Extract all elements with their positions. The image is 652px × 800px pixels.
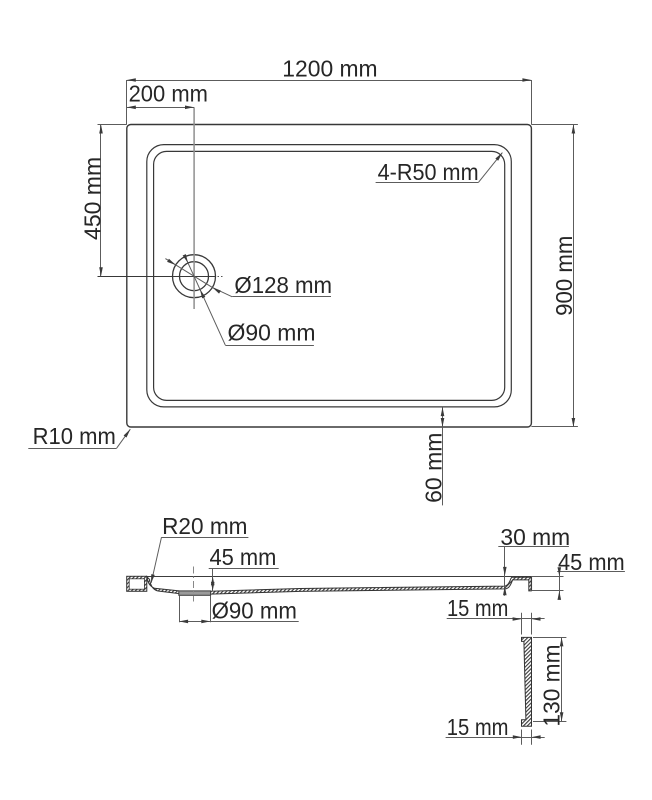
svg-text:130 mm: 130 mm	[539, 644, 565, 726]
svg-text:900 mm: 900 mm	[551, 236, 577, 316]
svg-text:Ø90 mm: Ø90 mm	[212, 598, 297, 624]
svg-text:45 mm: 45 mm	[558, 549, 625, 575]
svg-text:30 mm: 30 mm	[500, 524, 570, 550]
svg-text:4-R50 mm: 4-R50 mm	[378, 159, 479, 185]
svg-text:15 mm: 15 mm	[447, 714, 509, 740]
svg-text:R20 mm: R20 mm	[162, 513, 247, 539]
svg-text:Ø128 mm: Ø128 mm	[234, 272, 332, 298]
svg-text:450 mm: 450 mm	[80, 157, 106, 240]
svg-text:60 mm: 60 mm	[420, 433, 446, 503]
svg-text:200 mm: 200 mm	[129, 81, 208, 107]
svg-text:15 mm: 15 mm	[447, 595, 508, 621]
svg-text:45 mm: 45 mm	[210, 544, 277, 570]
svg-text:Ø90 mm: Ø90 mm	[228, 320, 316, 346]
svg-text:R10 mm: R10 mm	[33, 423, 116, 449]
svg-text:1200 mm: 1200 mm	[282, 55, 377, 81]
